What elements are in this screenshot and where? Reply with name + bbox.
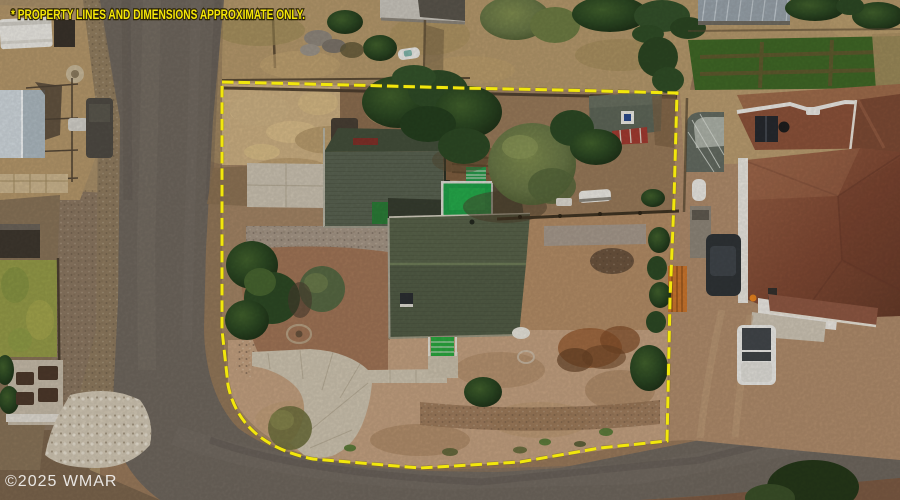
svg-text:©2025 WMAR: ©2025 WMAR	[5, 473, 117, 490]
svg-text:* PROPERTY LINES AND DIMENSION: * PROPERTY LINES AND DIMENSIONS APPROXIM…	[11, 6, 305, 22]
